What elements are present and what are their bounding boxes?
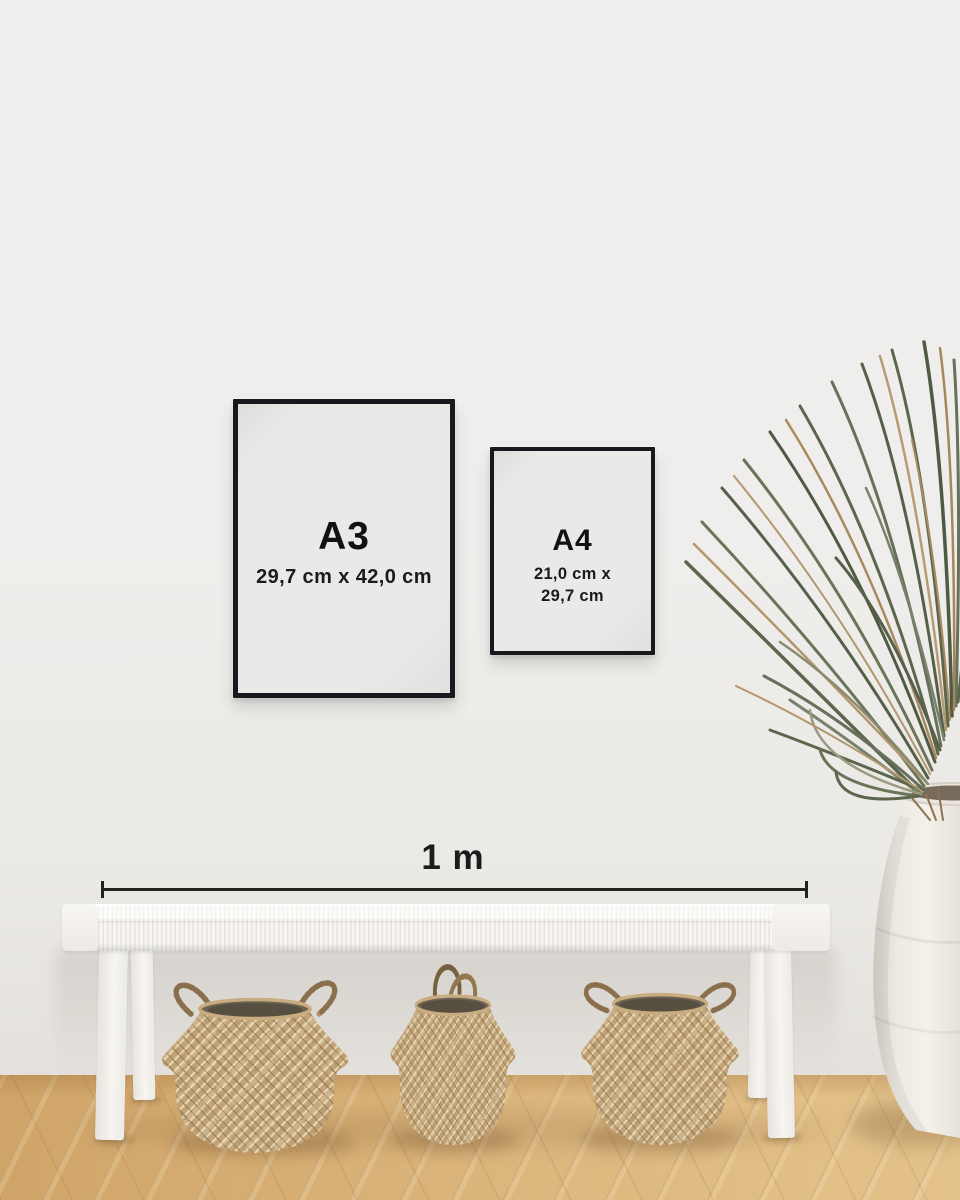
- a3-size-dimensions: 29,7 cm x 42,0 cm: [256, 566, 432, 589]
- a4-frame: A4 21,0 cm x 29,7 cm: [490, 447, 655, 655]
- bench-seat: [62, 904, 830, 951]
- bench-leg-left-front: [95, 948, 128, 1141]
- floor-vase: [858, 778, 960, 1150]
- scale-bar-right-tick: [805, 881, 808, 898]
- basket-2: [388, 948, 518, 1152]
- bench-leg-right-front: [764, 948, 795, 1139]
- a3-frame-content: A3 29,7 cm x 42,0 cm: [256, 515, 432, 589]
- palm-fronds: [686, 342, 960, 820]
- a4-size-dimensions-line2: 29,7 cm: [534, 586, 611, 608]
- palm-plant: [640, 320, 960, 820]
- scale-bar-line: [102, 888, 807, 891]
- bench-seat-left-cap: [62, 904, 98, 951]
- a4-size-dimensions-line1: 21,0 cm x: [534, 564, 611, 586]
- bench-seat-right-cap: [772, 904, 830, 951]
- a3-frame: A3 29,7 cm x 42,0 cm: [233, 399, 455, 698]
- scale-bar-left-tick: [101, 881, 104, 898]
- basket-3: [578, 950, 742, 1152]
- a3-size-label: A3: [256, 515, 432, 559]
- a4-size-label: A4: [534, 524, 611, 558]
- a4-size-dimensions: 21,0 cm x 29,7 cm: [534, 564, 611, 608]
- bench-leg-left-back: [131, 948, 156, 1100]
- room-scene: A3 29,7 cm x 42,0 cm A4 21,0 cm x 29,7 c…: [0, 0, 960, 1200]
- scale-bar-label: 1 m: [378, 838, 528, 878]
- a4-frame-content: A4 21,0 cm x 29,7 cm: [534, 524, 611, 608]
- basket-1: [158, 953, 352, 1160]
